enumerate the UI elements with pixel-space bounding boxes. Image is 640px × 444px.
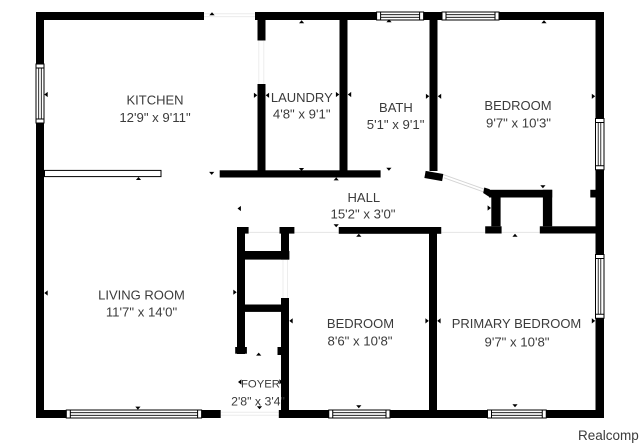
svg-text:BEDROOM: BEDROOM [484, 98, 551, 113]
svg-text:2'8" x 3'4": 2'8" x 3'4" [231, 394, 285, 408]
svg-text:9'7" x 10'8": 9'7" x 10'8" [485, 335, 550, 350]
svg-text:FOYER: FOYER [241, 379, 280, 391]
svg-text:HALL: HALL [348, 190, 381, 205]
svg-text:KITCHEN: KITCHEN [126, 93, 183, 108]
svg-text:BEDROOM: BEDROOM [327, 316, 394, 331]
svg-text:BATH: BATH [379, 100, 413, 115]
svg-text:5'1" x 9'1": 5'1" x 9'1" [367, 117, 425, 132]
svg-text:Realcomp: Realcomp [578, 428, 639, 443]
svg-text:9'7" x 10'3": 9'7" x 10'3" [486, 116, 551, 131]
svg-text:12'9" x 9'11": 12'9" x 9'11" [119, 110, 191, 125]
svg-text:PRIMARY BEDROOM: PRIMARY BEDROOM [452, 316, 582, 331]
svg-text:8'6" x 10'8": 8'6" x 10'8" [328, 334, 393, 349]
svg-text:4'8" x 9'1": 4'8" x 9'1" [273, 107, 331, 122]
svg-text:LIVING ROOM: LIVING ROOM [98, 288, 185, 303]
svg-text:11'7" x 14'0": 11'7" x 14'0" [106, 305, 178, 320]
svg-text:15'2" x 3'0": 15'2" x 3'0" [331, 207, 396, 222]
svg-text:LAUNDRY: LAUNDRY [271, 90, 333, 105]
